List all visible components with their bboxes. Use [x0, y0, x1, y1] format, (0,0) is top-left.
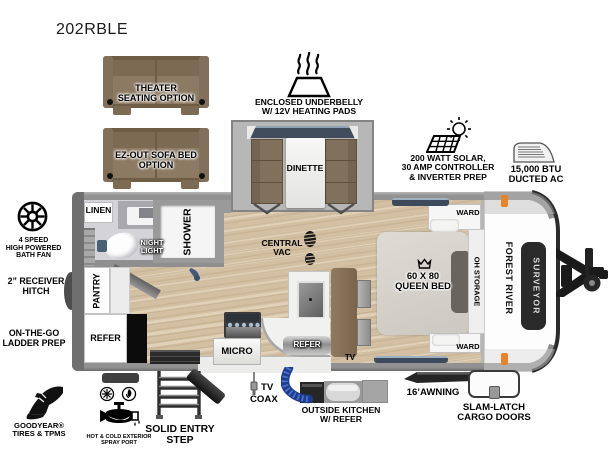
svg-text:SURVEYOR: SURVEYOR: [532, 257, 542, 314]
svg-text:FOREST RIVER: FOREST RIVER: [504, 242, 514, 315]
